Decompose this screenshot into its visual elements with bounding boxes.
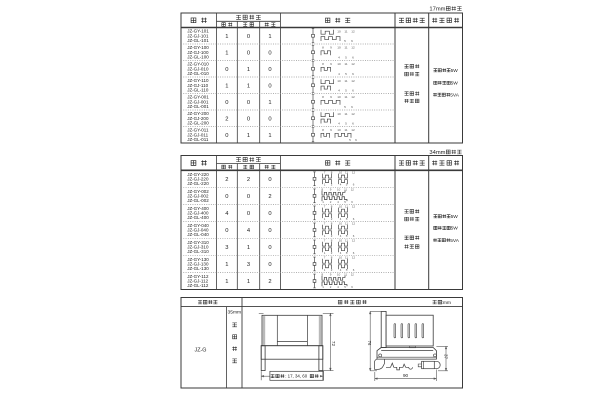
svg-text:9: 9 <box>330 46 332 50</box>
svg-text:1: 1 <box>225 34 228 40</box>
svg-text:5: 5 <box>345 72 347 76</box>
svg-text:0: 0 <box>268 83 271 89</box>
svg-text:11: 11 <box>344 188 347 192</box>
svg-text:12: 12 <box>351 62 355 66</box>
svg-text:5W: 5W <box>451 226 459 232</box>
svg-text:0: 0 <box>268 262 271 268</box>
svg-text:11: 11 <box>345 171 348 175</box>
svg-text:17mm: 17mm <box>429 6 445 12</box>
svg-text:8: 8 <box>322 62 324 66</box>
svg-text:JZ-GL-400: JZ-GL-400 <box>187 215 209 220</box>
svg-text:1: 1 <box>225 83 228 89</box>
svg-text:5: 5 <box>349 138 351 142</box>
svg-text:4: 4 <box>338 88 340 92</box>
svg-text:0: 0 <box>268 50 271 56</box>
svg-text:6: 6 <box>352 88 354 92</box>
svg-text:JZ-GL-110: JZ-GL-110 <box>187 87 209 92</box>
svg-text:2: 2 <box>268 194 271 200</box>
svg-text:10: 10 <box>339 205 343 209</box>
svg-text:1: 1 <box>225 262 228 268</box>
svg-text:2: 2 <box>225 177 228 183</box>
svg-text:37: 37 <box>443 354 448 359</box>
svg-text:8: 8 <box>322 128 324 132</box>
svg-text:6: 6 <box>351 39 353 43</box>
svg-text:JZ-GL-101: JZ-GL-101 <box>187 38 209 43</box>
svg-text:5: 5 <box>344 105 346 109</box>
svg-text:5VA: 5VA <box>450 92 460 98</box>
svg-text:JZ-GL-112: JZ-GL-112 <box>187 283 209 288</box>
svg-text:6: 6 <box>352 55 354 59</box>
svg-text:3: 3 <box>247 262 250 268</box>
svg-text:0: 0 <box>225 194 228 200</box>
svg-text:12: 12 <box>352 256 356 260</box>
svg-text:1: 1 <box>225 279 228 285</box>
svg-text:0: 0 <box>247 50 250 56</box>
svg-text:11: 11 <box>344 79 347 83</box>
svg-text:12: 12 <box>352 205 356 209</box>
svg-text:1: 1 <box>247 279 250 285</box>
svg-text:0: 0 <box>247 116 250 122</box>
svg-text:11: 11 <box>345 205 348 209</box>
svg-text:10: 10 <box>339 171 343 175</box>
svg-text:JZ-GL-100: JZ-GL-100 <box>187 54 209 59</box>
svg-text:11: 11 <box>344 46 347 50</box>
svg-text:5: 5 <box>344 39 346 43</box>
svg-text:0: 0 <box>247 211 250 217</box>
svg-text:JZ-GL-040: JZ-GL-040 <box>187 232 209 237</box>
svg-text:0: 0 <box>268 211 271 217</box>
svg-text:2: 2 <box>247 177 250 183</box>
svg-text:12: 12 <box>351 95 355 99</box>
svg-text:JZ-GL-200: JZ-GL-200 <box>187 120 209 125</box>
svg-text:4: 4 <box>338 55 340 59</box>
svg-text:JZ-GL-310: JZ-GL-310 <box>187 249 209 254</box>
svg-text::mm: :mm <box>442 301 452 306</box>
svg-text:5: 5 <box>345 121 347 125</box>
svg-text:1: 1 <box>268 133 271 139</box>
svg-text:12: 12 <box>351 112 355 116</box>
svg-text:JZ-GL-001: JZ-GL-001 <box>187 104 209 109</box>
svg-text:72: 72 <box>331 341 336 347</box>
svg-text:1: 1 <box>225 50 228 56</box>
svg-text:5W: 5W <box>451 214 459 220</box>
svg-text:6: 6 <box>352 121 354 125</box>
svg-text:12: 12 <box>352 222 356 226</box>
svg-text:10: 10 <box>337 46 341 50</box>
svg-text:9: 9 <box>330 62 332 66</box>
svg-text:11: 11 <box>344 273 347 277</box>
svg-text:12: 12 <box>351 79 355 83</box>
svg-text:0: 0 <box>225 67 228 73</box>
svg-text:0: 0 <box>268 116 271 122</box>
svg-text:0: 0 <box>247 34 250 40</box>
svg-text:1: 1 <box>268 100 271 106</box>
svg-text:0: 0 <box>268 177 271 183</box>
svg-text:JZ-GL-011: JZ-GL-011 <box>187 137 209 142</box>
svg-text:JZ-GL-002: JZ-GL-002 <box>187 198 209 203</box>
svg-text:1: 1 <box>247 133 250 139</box>
svg-text:2: 2 <box>268 279 271 285</box>
svg-text:8: 8 <box>322 46 324 50</box>
svg-text:11: 11 <box>345 222 348 226</box>
svg-text:10: 10 <box>337 188 341 192</box>
svg-text:5W: 5W <box>451 81 459 87</box>
svg-text:12: 12 <box>351 273 355 277</box>
svg-text:11: 11 <box>344 30 347 34</box>
svg-text:10: 10 <box>337 112 341 116</box>
svg-text:6: 6 <box>352 72 354 76</box>
svg-text:5: 5 <box>345 55 347 59</box>
svg-text:90: 90 <box>403 373 409 378</box>
svg-text:0: 0 <box>247 100 250 106</box>
svg-text:10: 10 <box>339 256 343 260</box>
svg-text:34mm: 34mm <box>429 150 445 156</box>
svg-text:0: 0 <box>247 194 250 200</box>
svg-text:10: 10 <box>339 222 343 226</box>
svg-text:4: 4 <box>338 121 340 125</box>
svg-text:10: 10 <box>337 128 341 132</box>
svg-text:10: 10 <box>339 239 343 243</box>
svg-text:11: 11 <box>345 256 348 260</box>
svg-text:4: 4 <box>338 72 340 76</box>
svg-text:12: 12 <box>351 30 355 34</box>
svg-text:10: 10 <box>337 95 341 99</box>
svg-text:9: 9 <box>330 128 332 132</box>
svg-text:10: 10 <box>337 62 341 66</box>
svg-text:0: 0 <box>225 228 228 234</box>
svg-text:1: 1 <box>268 34 271 40</box>
svg-text:JZ-GL-010: JZ-GL-010 <box>187 71 209 76</box>
svg-text:11: 11 <box>344 95 347 99</box>
svg-text:10: 10 <box>337 79 341 83</box>
svg-text:0: 0 <box>225 100 228 106</box>
svg-text:5: 5 <box>345 88 347 92</box>
svg-text:11: 11 <box>344 128 347 132</box>
svg-text:35mm: 35mm <box>228 310 242 316</box>
svg-text:2: 2 <box>225 116 228 122</box>
svg-text:0: 0 <box>268 67 271 73</box>
svg-text:5W: 5W <box>451 68 459 74</box>
svg-text:1: 1 <box>247 67 250 73</box>
svg-text:0: 0 <box>268 245 271 251</box>
svg-text:9: 9 <box>330 95 332 99</box>
svg-text:10: 10 <box>337 273 341 277</box>
svg-text:10: 10 <box>337 30 341 34</box>
svg-text:1: 1 <box>247 83 250 89</box>
svg-text:: 17, 34, 60: : 17, 34, 60 <box>285 374 308 379</box>
svg-text:JZ-G: JZ-G <box>195 348 207 354</box>
svg-text:8: 8 <box>322 95 324 99</box>
svg-text:12: 12 <box>352 239 356 243</box>
svg-text:6: 6 <box>351 105 353 109</box>
svg-text:12: 12 <box>352 171 356 175</box>
svg-text:76: 76 <box>367 341 372 346</box>
svg-text:6: 6 <box>355 138 357 142</box>
svg-text:12: 12 <box>351 188 355 192</box>
svg-text:12: 12 <box>351 46 355 50</box>
svg-text:11: 11 <box>344 62 347 66</box>
svg-text:3: 3 <box>225 245 228 251</box>
svg-text:12: 12 <box>351 128 355 132</box>
svg-text:1: 1 <box>247 245 250 251</box>
svg-text:JZ-GL-220: JZ-GL-220 <box>187 181 209 186</box>
svg-text:JZ-GL-130: JZ-GL-130 <box>187 266 209 271</box>
svg-text:11: 11 <box>344 112 347 116</box>
svg-text:0: 0 <box>225 133 228 139</box>
svg-text:11: 11 <box>345 239 348 243</box>
svg-text:0: 0 <box>268 228 271 234</box>
svg-text:5VA: 5VA <box>450 238 460 244</box>
